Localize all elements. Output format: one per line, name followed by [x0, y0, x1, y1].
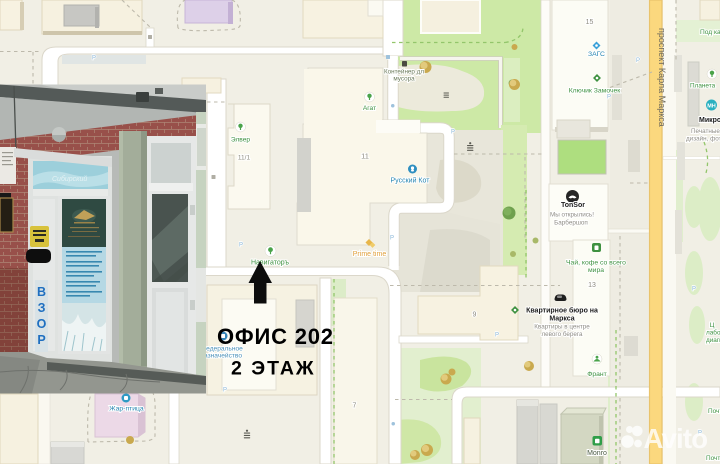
svg-text:Р: Р — [239, 243, 243, 249]
svg-text:Квартиры в центре: Квартиры в центре — [534, 324, 590, 331]
svg-text:11/1: 11/1 — [238, 155, 251, 162]
svg-text:Квартирное бюро на: Квартирное бюро на — [526, 307, 598, 315]
svg-text:Ключик Замочек: Ключик Замочек — [569, 88, 621, 95]
svg-text:Маркса: Маркса — [549, 316, 574, 323]
svg-text:Р: Р — [92, 56, 96, 62]
svg-text:Prime time: Prime time — [353, 251, 387, 258]
svg-text:Почт: Почт — [708, 408, 720, 415]
svg-text:О: О — [37, 317, 47, 331]
svg-text:Р: Р — [451, 130, 455, 136]
svg-text:Контейнер дл: Контейнер дл — [384, 68, 424, 76]
svg-text:Р: Р — [495, 333, 499, 339]
svg-text:Avito: Avito — [644, 423, 708, 454]
svg-text:2 ЭТАЖ: 2 ЭТАЖ — [231, 358, 316, 380]
svg-text:Р: Р — [607, 95, 611, 101]
svg-text:Сибирский: Сибирский — [52, 175, 87, 183]
svg-text:З: З — [38, 301, 46, 315]
svg-text:лабора: лабора — [706, 329, 720, 337]
svg-text:ОФИС 202: ОФИС 202 — [217, 324, 334, 349]
svg-text:Элвер: Элвер — [231, 137, 250, 144]
svg-text:Ц: Ц — [710, 322, 715, 329]
svg-text:левого берега: левого берега — [541, 330, 583, 338]
svg-text:дизайн, фот: дизайн, фот — [686, 135, 720, 143]
svg-text:МН: МН — [707, 103, 716, 109]
svg-text:15: 15 — [586, 19, 594, 26]
svg-text:11: 11 — [361, 152, 369, 161]
svg-text:Навигаторъ: Навигаторъ — [251, 260, 290, 267]
svg-text:TonSor: TonSor — [561, 202, 585, 209]
svg-text:диагно: диагно — [706, 337, 720, 344]
svg-text:Микрон: Микрон — [699, 117, 720, 124]
svg-text:Р: Р — [636, 58, 640, 64]
svg-text:Р: Р — [223, 388, 227, 394]
svg-text:проспект Карла Маркса: проспект Карла Маркса — [657, 28, 667, 127]
svg-text:Жар-птица: Жар-птица — [109, 406, 144, 413]
svg-text:Русский Кот: Русский Кот — [391, 177, 431, 185]
svg-text:ЗАГС: ЗАГС — [588, 51, 605, 58]
svg-text:Франт: Франт — [587, 371, 607, 378]
svg-text:Мы открылись!: Мы открылись! — [550, 212, 594, 219]
svg-text:Monro: Monro — [587, 450, 607, 457]
svg-text:Почта: Почта — [706, 455, 720, 462]
svg-text:Печатные ус: Печатные ус — [691, 128, 720, 135]
svg-text:Планета: Планета — [690, 83, 716, 90]
svg-text:Агат: Агат — [363, 105, 376, 112]
svg-text:Р: Р — [692, 287, 696, 293]
svg-text:мусора: мусора — [393, 76, 415, 83]
svg-text:7: 7 — [353, 403, 357, 410]
svg-text:Чай, кофе со всего: Чай, кофе со всего — [566, 259, 626, 267]
svg-text:В: В — [37, 285, 46, 299]
svg-text:13: 13 — [588, 282, 596, 289]
svg-text:9: 9 — [473, 312, 477, 319]
svg-text:Р: Р — [390, 236, 394, 242]
svg-text:Р: Р — [37, 333, 45, 347]
svg-text:Барбершоп: Барбершоп — [554, 219, 588, 227]
svg-text:Под ка: Под ка — [700, 29, 720, 36]
svg-text:мира: мира — [588, 267, 604, 274]
